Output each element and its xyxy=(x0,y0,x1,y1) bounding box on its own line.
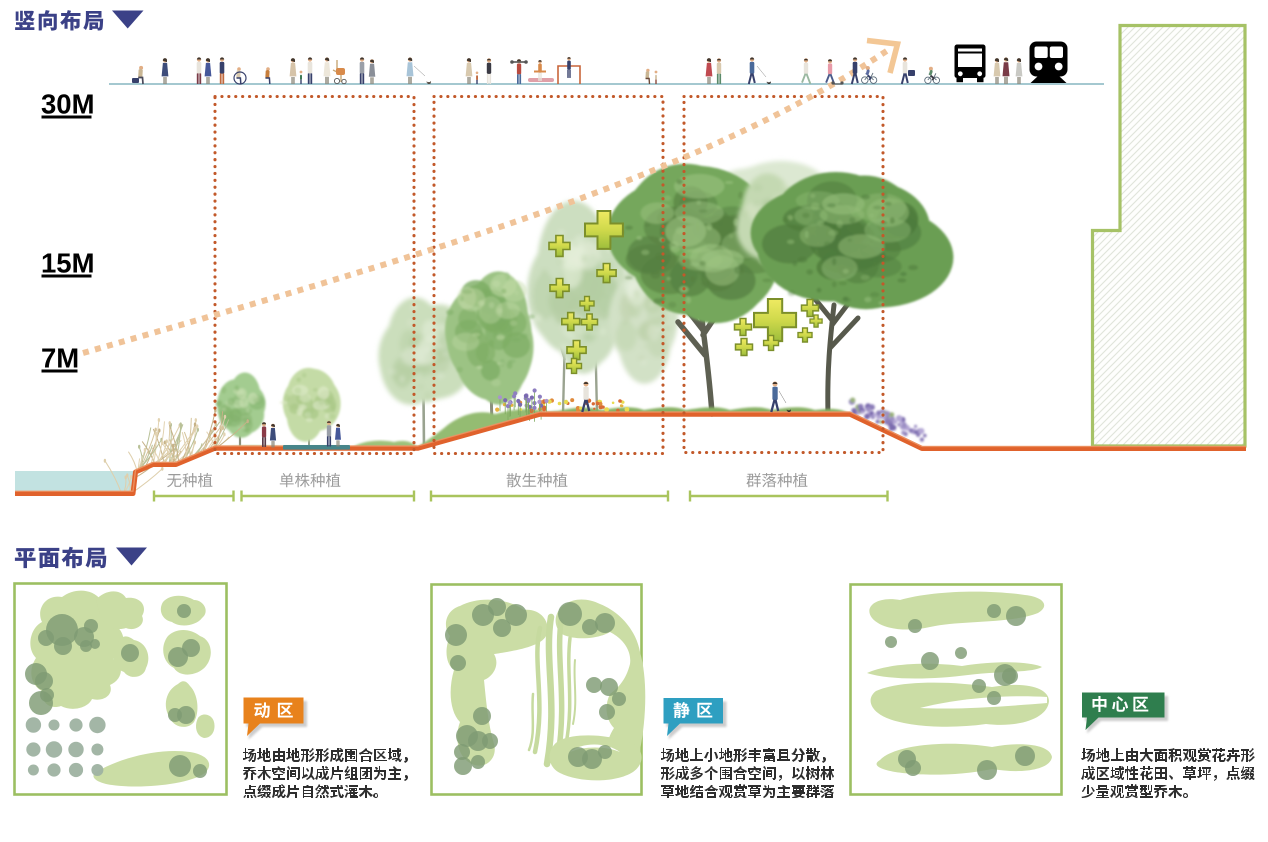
svg-text:7M: 7M xyxy=(41,343,79,374)
svg-text:15M: 15M xyxy=(41,248,95,279)
svg-text:30M: 30M xyxy=(41,89,95,120)
